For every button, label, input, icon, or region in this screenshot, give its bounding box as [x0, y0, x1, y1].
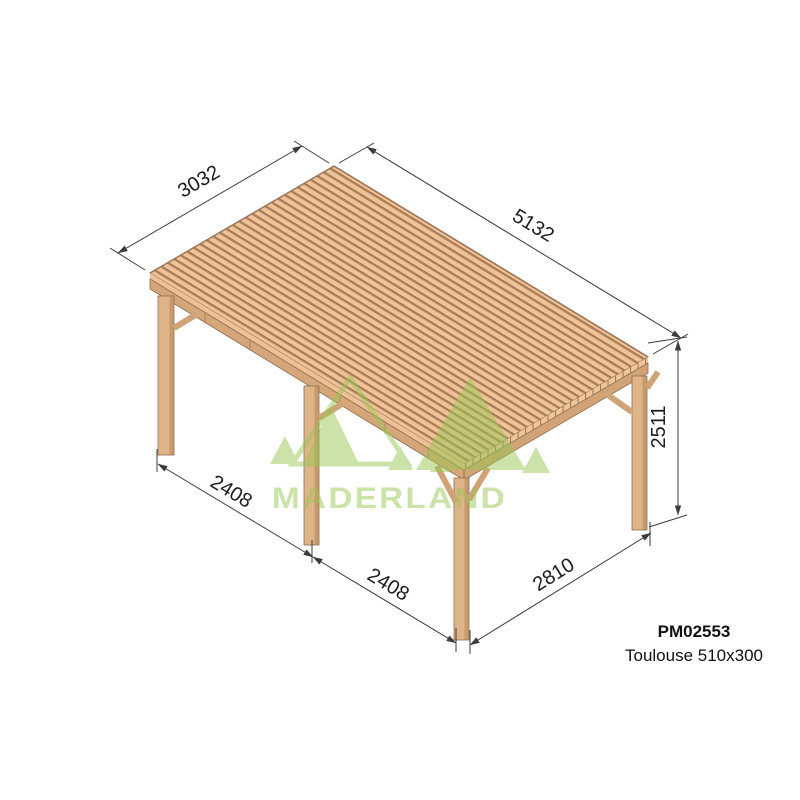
- brace-right-back: [647, 372, 658, 388]
- roof-slats: [150, 166, 648, 464]
- label-bay-left-2: 2408: [363, 564, 412, 606]
- label-roof-width: 5132: [508, 205, 557, 247]
- label-bay-front: 2810: [529, 554, 578, 596]
- logo-small-triangle-middle: [388, 446, 413, 470]
- dimension-front-edge: [470, 522, 651, 654]
- brace-back-left: [174, 314, 197, 328]
- pergola-structure: [150, 166, 658, 640]
- post-back-left: [158, 296, 174, 455]
- label-post-height: 2511: [648, 405, 670, 448]
- maderland-wordmark: MADERLAND: [272, 482, 507, 515]
- product-name: Toulouse 510x300: [625, 646, 763, 665]
- logo-small-triangle-right: [522, 447, 550, 473]
- post-right-corner: [632, 376, 647, 530]
- brace-right-left: [608, 395, 632, 412]
- label-bay-left-1: 2408: [206, 471, 255, 513]
- product-illustration: 3032 5132 2511 2408 2408 2810 MADERLAND …: [0, 0, 800, 800]
- pergola-drawing: 3032 5132 2511 2408 2408 2810 MADERLAND …: [0, 0, 800, 800]
- product-info: PM02553 Toulouse 510x300: [625, 622, 763, 665]
- product-code: PM02553: [658, 622, 731, 641]
